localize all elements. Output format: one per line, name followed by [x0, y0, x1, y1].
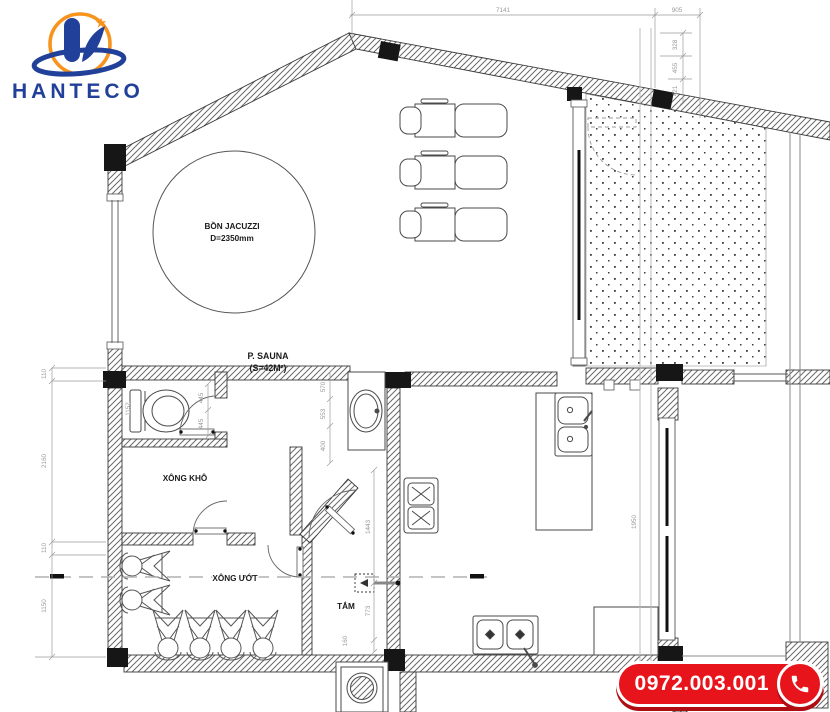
dim-vanity [327, 369, 333, 466]
lounge-chair-icon [120, 585, 170, 615]
left-window [107, 194, 123, 349]
toilet-icon [130, 390, 189, 432]
sauna-terrace-partition [571, 100, 587, 366]
wet-steam-label: XÔNG ƯỚT [212, 572, 257, 583]
wall-bath-left [302, 532, 312, 656]
center-line [35, 574, 487, 579]
phone-number: 0972.003.001 [635, 672, 769, 696]
phone-icon [777, 661, 823, 707]
floor-drain-icon [336, 662, 388, 712]
dim-label: 445 [198, 418, 205, 429]
vanity-sink [348, 372, 385, 450]
dim-label: 2160 [41, 454, 48, 469]
dim-label: 1950 [631, 515, 638, 530]
wall-left-lower [108, 388, 122, 650]
door-dry-steam [193, 501, 227, 535]
wall-kitchen-left [387, 388, 400, 650]
dim-label: 7141 [496, 7, 511, 14]
hanteco-logo-mark [8, 4, 168, 84]
sauna-label: P. SAUNA [248, 351, 290, 361]
terrace-floor [586, 94, 766, 366]
logo-sail [82, 26, 105, 62]
dim-label: 110 [41, 368, 48, 379]
bath-label: TẮM [337, 601, 355, 611]
hanteco-logo-text: HANTECO [12, 80, 144, 104]
wall-left-mid [108, 346, 122, 374]
floor-plan-page: 7141 905 328 455 421 110 2160 110 1150 5… [0, 0, 830, 712]
kitchen-window [659, 418, 675, 640]
dim-label: 553 [320, 408, 327, 419]
wall-dry-wet-1 [122, 533, 193, 545]
dim-label: 110 [41, 542, 48, 553]
dim-bath [371, 467, 377, 655]
dim-label: 160 [342, 635, 349, 646]
logo-swoosh [33, 47, 125, 78]
wall-terrace-bottom-1 [586, 368, 658, 384]
massage-bed [400, 99, 507, 137]
jacuzzi-tub [153, 151, 315, 313]
phone-badge[interactable]: 0972.003.001 [616, 661, 824, 707]
hanteco-logo: HANTECO [8, 4, 178, 114]
wall-sauna-bottom-right [405, 372, 557, 386]
wall-dry-wet-2 [227, 533, 255, 545]
dim-label: 905 [672, 7, 683, 14]
logo-h-stem [64, 18, 80, 62]
dim-label: 570 [320, 381, 327, 392]
jacuzzi-label: BỒN JACUZZI [204, 220, 259, 231]
dim-label: 455 [672, 62, 679, 73]
wall-terrace-bottom-2 [682, 370, 734, 384]
kitchen [404, 393, 658, 667]
island-sink-icon [555, 393, 592, 456]
jacuzzi-dim-label: D=2350mm [210, 234, 253, 243]
lounge-chair-icon [153, 610, 183, 660]
wall-kitchen-right-top [658, 388, 678, 420]
wall-dry-right [290, 447, 302, 535]
dim-label: 400 [320, 440, 327, 451]
lounge-chair-icon [185, 610, 215, 660]
dim-label: 1150 [41, 599, 48, 613]
wall-sauna-bottom-left [122, 366, 350, 380]
dry-steam-label: XÔNG KHÔ [163, 472, 208, 483]
kitchen-counter [594, 607, 658, 655]
massage-bed [400, 151, 507, 189]
dim-label: 1152 [125, 402, 132, 416]
wall-wc-bottom [122, 439, 227, 447]
door-wet-steam [268, 545, 303, 577]
massage-beds [400, 99, 507, 241]
wall-terrace-bottom-3 [786, 370, 830, 384]
dim-label: 773 [365, 605, 372, 616]
dim-label: 328 [672, 39, 679, 50]
stove-icon [404, 478, 438, 533]
lounge-chair-icon [216, 610, 246, 660]
dim-label: 421 [672, 85, 679, 96]
massage-bed [400, 203, 507, 241]
wall-wc-right-top [215, 372, 227, 398]
dim-label: 445 [198, 392, 205, 403]
dim-label: 1443 [365, 520, 372, 535]
wall-below-drain [400, 672, 416, 712]
sauna-area-label: (S=42M²) [250, 363, 287, 373]
lounge-chairs [120, 551, 278, 660]
dim-left [35, 365, 106, 660]
lounge-chair-icon [248, 610, 278, 660]
